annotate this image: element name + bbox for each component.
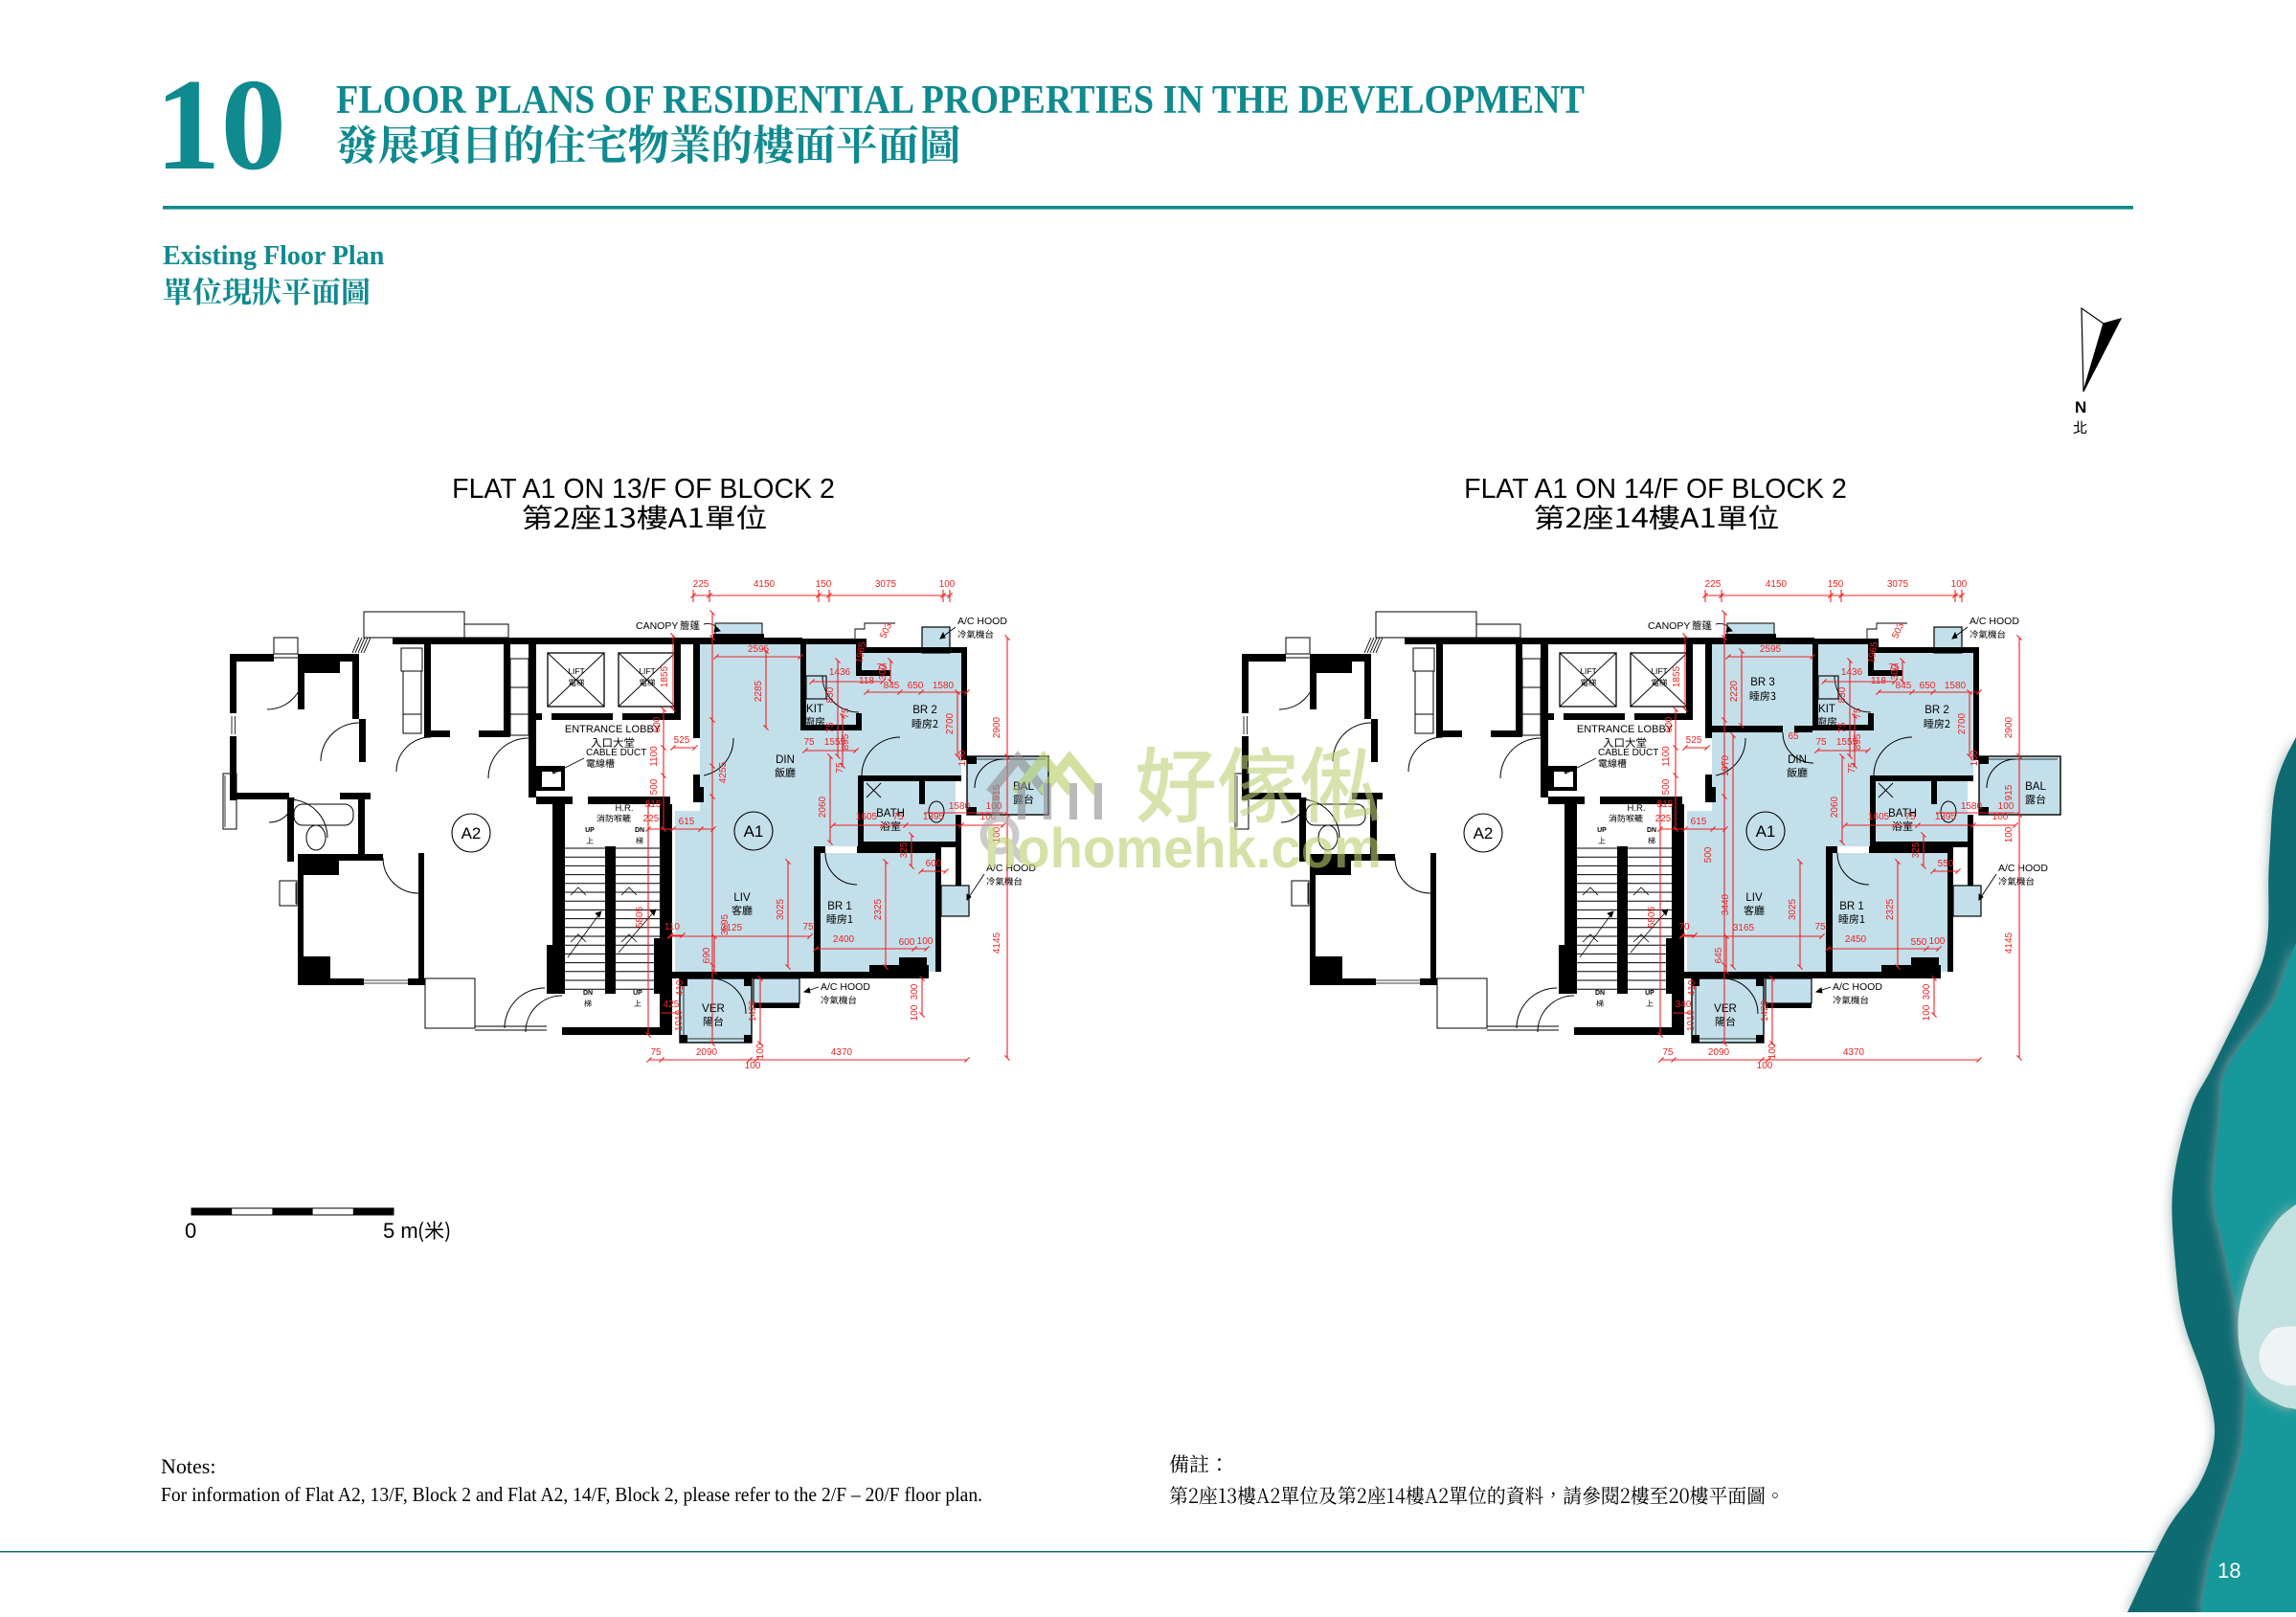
svg-text:18: 18 (2217, 1559, 2240, 1583)
svg-text:75: 75 (1814, 922, 1826, 932)
svg-text:2450: 2450 (1845, 934, 1867, 945)
svg-text:75: 75 (1847, 762, 1857, 774)
svg-text:LIFT: LIFT (1580, 666, 1596, 676)
svg-text:2900: 2900 (992, 716, 1002, 738)
svg-text:CANOPY: CANOPY (1648, 620, 1690, 632)
svg-text:A/C HOOD: A/C HOOD (1970, 616, 2019, 627)
svg-text:3165: 3165 (1733, 923, 1755, 933)
svg-text:2700: 2700 (1957, 712, 1968, 734)
svg-text:2595: 2595 (1760, 644, 1782, 655)
svg-text:100: 100 (1757, 1061, 1773, 1071)
svg-text:UP: UP (1597, 827, 1607, 834)
svg-text:75: 75 (1853, 707, 1863, 719)
svg-text:2325: 2325 (873, 898, 884, 920)
svg-text:LIV: LIV (733, 892, 751, 904)
svg-text:690: 690 (702, 947, 712, 963)
svg-text:DIN: DIN (776, 754, 795, 766)
svg-text:0: 0 (185, 1219, 196, 1243)
svg-text:300: 300 (1922, 983, 1932, 999)
svg-text:100: 100 (755, 1043, 766, 1059)
svg-text:DIN: DIN (1788, 754, 1807, 766)
svg-text:500: 500 (1661, 778, 1672, 795)
svg-text:2090: 2090 (696, 1047, 718, 1058)
svg-text:H.R.: H.R. (1628, 803, 1646, 814)
svg-text:70: 70 (1678, 922, 1690, 932)
svg-text:BR 2: BR 2 (1925, 705, 1949, 716)
svg-text:1010: 1010 (1686, 1009, 1697, 1031)
svg-text:KIT: KIT (806, 704, 823, 715)
svg-text:525: 525 (674, 735, 690, 746)
svg-text:VER: VER (702, 1003, 725, 1015)
svg-text:3025: 3025 (776, 898, 786, 920)
svg-text:1580: 1580 (949, 801, 971, 812)
svg-text:4370: 4370 (1843, 1047, 1865, 1058)
svg-text:4150: 4150 (754, 579, 776, 590)
svg-text:2400: 2400 (833, 934, 855, 945)
svg-text:5 m: 5 m (383, 1219, 418, 1243)
svg-text:118: 118 (1871, 676, 1886, 686)
svg-text:75: 75 (1904, 812, 1916, 822)
svg-text:75: 75 (1837, 722, 1848, 733)
svg-text:830: 830 (825, 686, 836, 703)
svg-text:118: 118 (859, 676, 874, 686)
svg-text:100: 100 (1922, 1004, 1932, 1021)
svg-text:BR 1: BR 1 (1839, 901, 1864, 912)
svg-text:75: 75 (1815, 737, 1827, 748)
svg-text:2900: 2900 (2004, 716, 2015, 738)
svg-text:315: 315 (645, 799, 662, 810)
svg-text:100: 100 (1970, 750, 1980, 766)
svg-text:10: 10 (155, 52, 286, 197)
svg-text:1436: 1436 (829, 667, 851, 678)
svg-text:150: 150 (816, 579, 832, 590)
svg-text:VER: VER (1714, 1003, 1737, 1015)
svg-text:75: 75 (802, 922, 814, 932)
svg-text:1605: 1605 (856, 812, 878, 822)
svg-text:UP: UP (633, 990, 642, 997)
svg-text:150: 150 (1828, 579, 1844, 590)
svg-text:3075: 3075 (1887, 579, 1909, 590)
svg-text:650: 650 (908, 681, 924, 691)
svg-text:A2: A2 (461, 824, 482, 842)
svg-text:75: 75 (892, 812, 904, 822)
svg-text:FLAT A1 ON 14/F OF BLOCK 2: FLAT A1 ON 14/F OF BLOCK 2 (1464, 474, 1847, 505)
svg-text:1970: 1970 (1721, 754, 1731, 776)
svg-text:FLAT A1 ON 13/F OF BLOCK 2: FLAT A1 ON 13/F OF BLOCK 2 (452, 474, 835, 505)
svg-text:75: 75 (1662, 1047, 1674, 1058)
svg-text:BAL: BAL (2025, 781, 2046, 793)
svg-text:A/C HOOD: A/C HOOD (1833, 981, 1882, 993)
svg-text:225: 225 (1705, 579, 1722, 590)
svg-text:1580: 1580 (933, 681, 955, 691)
svg-text:DN: DN (583, 990, 593, 997)
svg-text:100: 100 (939, 579, 956, 590)
svg-text:300: 300 (910, 983, 920, 999)
svg-text:2060: 2060 (1830, 796, 1840, 818)
svg-text:75: 75 (803, 737, 815, 748)
svg-text:2220: 2220 (1729, 680, 1740, 702)
svg-text:4145: 4145 (2004, 932, 2015, 954)
svg-text:615: 615 (1691, 817, 1707, 827)
svg-text:hohomehk.com: hohomehk.com (984, 818, 1382, 880)
svg-text:325: 325 (899, 842, 910, 858)
svg-text:4255: 4255 (718, 761, 729, 783)
svg-text:A/C HOOD: A/C HOOD (821, 981, 870, 993)
svg-text:LIV: LIV (1745, 892, 1763, 904)
svg-text:2060: 2060 (818, 796, 828, 818)
svg-text:4145: 4145 (992, 932, 1002, 954)
svg-text:645: 645 (1714, 947, 1724, 963)
svg-text:550: 550 (1911, 937, 1927, 948)
svg-text:325: 325 (1911, 842, 1922, 858)
svg-text:ENTRANCE LOBBY: ENTRANCE LOBBY (565, 724, 662, 735)
svg-text:UP: UP (585, 827, 595, 834)
svg-text:895: 895 (1853, 733, 1863, 750)
svg-text:3440: 3440 (1721, 893, 1731, 915)
svg-text:895: 895 (841, 733, 851, 750)
svg-text:DN: DN (1595, 990, 1605, 997)
svg-text:5805: 5805 (635, 906, 645, 928)
svg-text:KIT: KIT (1818, 704, 1835, 715)
svg-text:600: 600 (652, 716, 663, 732)
svg-text:H.R.: H.R. (616, 803, 634, 814)
svg-text:CABLE DUCT: CABLE DUCT (1598, 748, 1658, 758)
svg-text:525: 525 (1686, 735, 1702, 746)
svg-text:A1: A1 (1756, 822, 1776, 841)
svg-text:LIFT: LIFT (568, 666, 584, 676)
svg-text:1580: 1580 (1945, 681, 1967, 691)
svg-text:FLOOR PLANS OF RESIDENTIAL PRO: FLOOR PLANS OF RESIDENTIAL PROPERTIES IN… (336, 79, 1585, 123)
svg-text:915: 915 (2004, 784, 2015, 800)
svg-text:600: 600 (1664, 716, 1675, 732)
svg-text:A1: A1 (744, 822, 764, 841)
svg-text:1580: 1580 (1961, 801, 1983, 812)
svg-text:100: 100 (1929, 936, 1946, 947)
svg-text:100: 100 (1992, 812, 2009, 822)
svg-text:500: 500 (649, 778, 660, 795)
svg-text:1420: 1420 (748, 999, 758, 1022)
svg-text:1100: 1100 (649, 746, 660, 767)
svg-text:650: 650 (1920, 681, 1936, 691)
svg-text:75: 75 (841, 707, 851, 719)
svg-text:225: 225 (643, 814, 660, 824)
svg-text:ENTRANCE LOBBY: ENTRANCE LOBBY (1577, 724, 1674, 735)
svg-text:2090: 2090 (1708, 1047, 1730, 1058)
svg-text:615: 615 (679, 817, 695, 827)
svg-text:A2: A2 (1474, 824, 1494, 842)
svg-text:65: 65 (1788, 731, 1799, 742)
svg-text:3595: 3595 (720, 913, 731, 935)
svg-text:DN: DN (635, 827, 644, 834)
svg-text:Existing Floor Plan: Existing Floor Plan (163, 241, 385, 271)
svg-text:1395: 1395 (923, 812, 945, 822)
svg-text:100: 100 (1951, 579, 1968, 590)
svg-text:100: 100 (745, 1061, 761, 1071)
svg-text:600: 600 (926, 859, 942, 869)
svg-text:100: 100 (2004, 826, 2015, 842)
svg-text:75: 75 (650, 1047, 662, 1058)
svg-text:100: 100 (910, 1004, 920, 1021)
svg-text:340: 340 (1676, 999, 1692, 1010)
svg-text:For information of Flat A2, 13: For information of Flat A2, 13/F, Block … (161, 1483, 982, 1506)
svg-text:830: 830 (1837, 686, 1848, 703)
svg-text:100: 100 (1998, 801, 2015, 812)
svg-text:300: 300 (878, 663, 889, 680)
svg-text:BR 3: BR 3 (1750, 677, 1775, 688)
svg-text:1855: 1855 (1672, 665, 1682, 687)
svg-text:75: 75 (825, 722, 836, 733)
svg-text:315: 315 (1657, 799, 1674, 810)
svg-text:LIFT: LIFT (639, 666, 655, 676)
svg-text:225: 225 (1655, 814, 1672, 824)
svg-text:300: 300 (1890, 663, 1901, 680)
svg-text:1010: 1010 (674, 1009, 685, 1031)
svg-text:410: 410 (1687, 979, 1698, 996)
svg-text:500: 500 (1703, 846, 1714, 863)
svg-text:4370: 4370 (831, 1047, 853, 1058)
svg-text:1100: 1100 (1661, 746, 1672, 767)
svg-text:A/C HOOD: A/C HOOD (957, 616, 1007, 627)
svg-text:LIFT: LIFT (1651, 666, 1667, 676)
svg-text:425: 425 (664, 999, 680, 1010)
svg-text:A/C HOOD: A/C HOOD (1998, 863, 2048, 874)
svg-text:100: 100 (1767, 1043, 1778, 1059)
svg-text:1605: 1605 (1868, 812, 1890, 822)
svg-text:DN: DN (1647, 827, 1656, 834)
svg-text:CABLE DUCT: CABLE DUCT (586, 748, 646, 758)
svg-text:UP: UP (1645, 990, 1654, 997)
svg-text:2285: 2285 (754, 680, 764, 702)
svg-text:4150: 4150 (1766, 579, 1788, 590)
svg-text:600: 600 (899, 937, 915, 948)
svg-text:3075: 3075 (875, 579, 897, 590)
svg-text:BR 1: BR 1 (827, 901, 852, 912)
svg-text:Notes:: Notes: (161, 1454, 215, 1478)
svg-text:410: 410 (675, 979, 686, 996)
svg-text:5805: 5805 (1647, 906, 1657, 928)
svg-text:N: N (2075, 398, 2086, 416)
svg-text:110: 110 (664, 922, 680, 932)
svg-text:550: 550 (1938, 859, 1954, 869)
svg-text:100: 100 (917, 936, 934, 947)
svg-text:3025: 3025 (1788, 898, 1798, 920)
svg-text:75: 75 (835, 762, 845, 774)
svg-text:1436: 1436 (1841, 667, 1863, 678)
svg-text:225: 225 (693, 579, 709, 590)
svg-text:100: 100 (957, 750, 968, 766)
svg-text:2700: 2700 (945, 712, 956, 734)
svg-text:1395: 1395 (1935, 812, 1957, 822)
svg-text:CANOPY: CANOPY (636, 620, 678, 632)
svg-text:1855: 1855 (660, 665, 670, 687)
svg-text:BR 2: BR 2 (912, 705, 937, 716)
svg-text:2325: 2325 (1885, 898, 1896, 920)
svg-text:1420: 1420 (1760, 999, 1770, 1022)
